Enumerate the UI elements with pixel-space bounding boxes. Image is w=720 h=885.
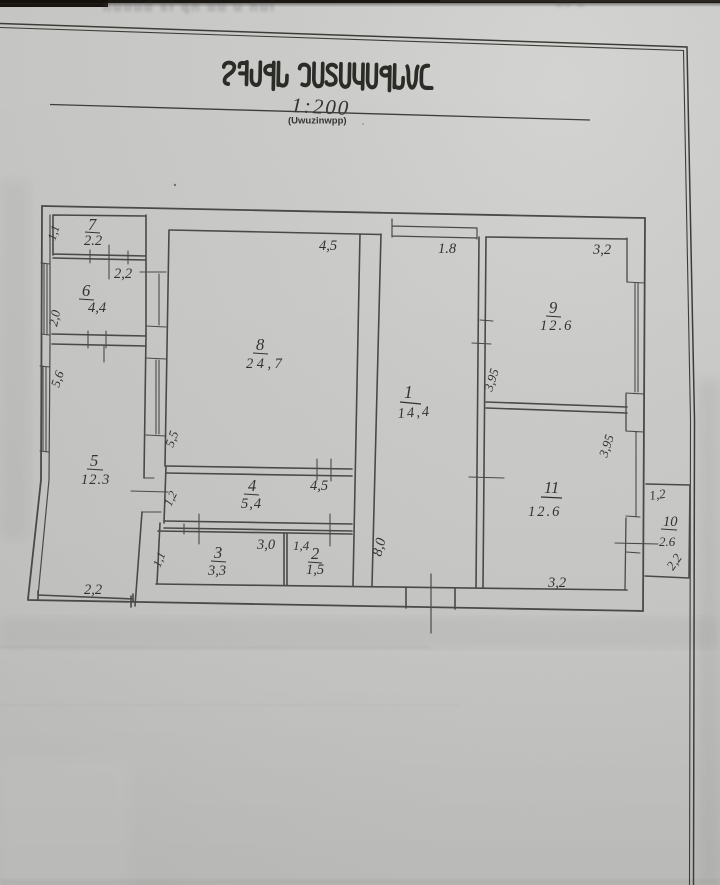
svg-text:2.2: 2.2 (84, 233, 102, 249)
svg-text:14,4: 14,4 (397, 404, 431, 422)
svg-text:(Uwuzinwpp): (Uwuzinwpp) (288, 116, 347, 127)
svg-text:12.6: 12.6 (528, 504, 561, 520)
svg-text:4,5: 4,5 (319, 238, 337, 254)
svg-text:7: 7 (88, 215, 97, 234)
svg-text:nuoud sl qn uu u nul: nuoud sl qn uu u nul (103, 0, 276, 14)
svg-text:4,4: 4,4 (88, 300, 106, 316)
svg-text:6: 6 (82, 281, 91, 300)
svg-text:2: 2 (311, 544, 319, 563)
svg-text:2.6: 2.6 (659, 534, 676, 549)
svg-text:3,0: 3,0 (256, 537, 276, 553)
svg-text:12.3: 12.3 (81, 472, 110, 488)
svg-text:12.6: 12.6 (540, 318, 573, 334)
svg-text:5,4: 5,4 (241, 496, 262, 512)
svg-text:4: 4 (248, 476, 256, 495)
svg-text:10: 10 (663, 514, 678, 530)
svg-text:24,7: 24,7 (246, 356, 285, 372)
svg-text:1,4: 1,4 (293, 538, 310, 553)
svg-text:4,5: 4,5 (310, 478, 328, 494)
svg-text:1,2: 1,2 (648, 486, 667, 503)
svg-text:11: 11 (544, 478, 559, 497)
svg-text:8: 8 (256, 335, 265, 354)
svg-text:un u: un u (555, 0, 586, 10)
svg-text:1,5: 1,5 (306, 562, 324, 578)
svg-text:5: 5 (90, 451, 98, 470)
svg-text:3,2: 3,2 (592, 242, 611, 258)
svg-text:3,2: 3,2 (547, 575, 566, 591)
svg-text:2,2: 2,2 (114, 266, 132, 282)
svg-text:1: 1 (404, 382, 413, 402)
svg-text:2,2: 2,2 (84, 582, 102, 598)
svg-text:9: 9 (549, 298, 557, 317)
svg-text:3: 3 (213, 543, 222, 562)
svg-text:3,3: 3,3 (207, 563, 226, 579)
svg-text:1.8: 1.8 (438, 241, 457, 257)
